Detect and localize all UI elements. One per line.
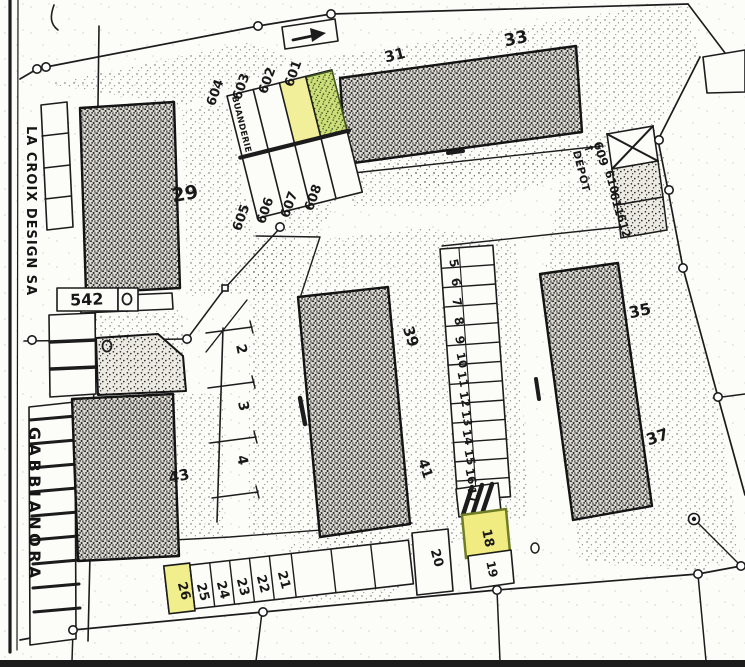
scanned-site-plan: LA CROIX DESIGN SA GABBIANORA 542 29 31 … xyxy=(0,0,745,667)
plot-542-label: 542 xyxy=(70,289,104,309)
building-43 xyxy=(72,394,179,561)
street-la-croix-label: LA CROIX DESIGN SA xyxy=(23,126,38,296)
building-29-label: 29 xyxy=(170,181,200,207)
site-plan-svg: LA CROIX DESIGN SA GABBIANORA 542 29 31 … xyxy=(0,0,745,667)
street-gabbianora-label: GABBIANORA xyxy=(25,427,44,582)
building-top-right xyxy=(703,50,745,93)
building-29 xyxy=(80,102,180,293)
